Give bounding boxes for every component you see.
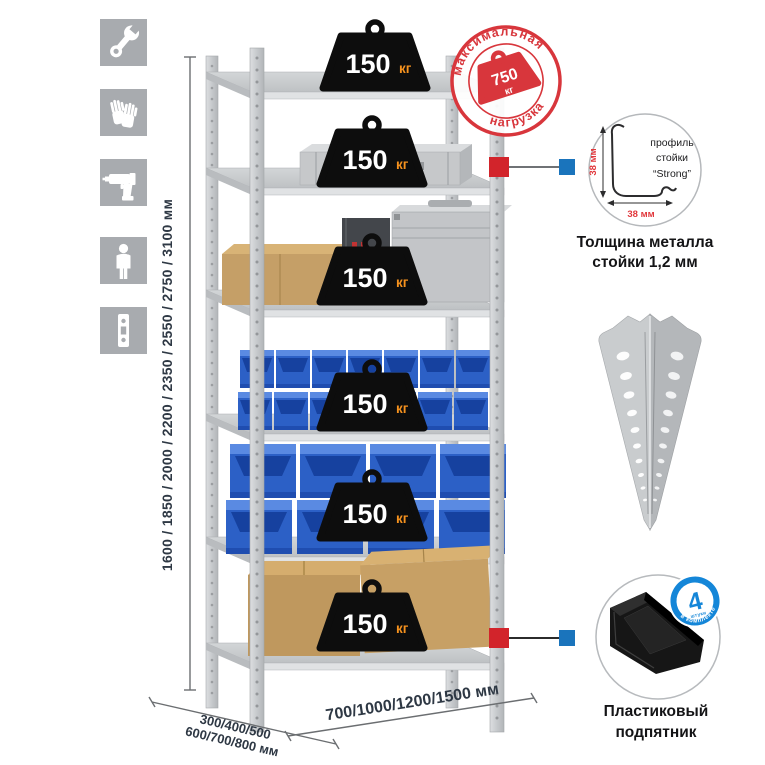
profile-dim-vertical: 38 мм [588, 148, 599, 175]
infographic-scene: 1600 / 1850 / 2000 / 2200 / 2350 / 2550 … [0, 0, 765, 765]
person-icon [100, 237, 147, 284]
svg-text:кг: кг [396, 275, 409, 290]
svg-text:150: 150 [342, 609, 387, 639]
callout-foot [489, 628, 575, 648]
svg-text:кг: кг [396, 621, 409, 636]
svg-text:150: 150 [342, 263, 387, 293]
svg-text:150: 150 [342, 145, 387, 175]
load-unit: кг [399, 61, 412, 76]
svg-text:кг: кг [396, 511, 409, 526]
callout-blue-marker [559, 630, 575, 646]
callout-post-profile [489, 157, 575, 177]
profile-label-3: “Strong” [653, 168, 691, 180]
load-value: 150 [345, 49, 390, 79]
foot-caption-line2: подпятник [615, 724, 696, 741]
thickness-caption-line2: стойки 1,2 мм [592, 254, 697, 271]
profile-label-2: стойки [656, 152, 688, 164]
drill-icon [100, 159, 147, 206]
callout-red-marker [489, 157, 509, 177]
product-infographic: 1600 / 1850 / 2000 / 2200 / 2350 / 2550 … [0, 0, 765, 765]
rack-post-front-left [250, 48, 264, 732]
callout-blue-marker [559, 159, 575, 175]
tools-icon-column [100, 19, 147, 354]
svg-text:150: 150 [342, 389, 387, 419]
gloves-icon [100, 89, 147, 136]
depth-dimension: 300/400/500 600/700/800 мм [149, 697, 339, 759]
height-dimension: 1600 / 1850 / 2000 / 2200 / 2350 / 2550 … [159, 57, 196, 690]
load-badge-2: 150 кг [320, 118, 424, 184]
post-profile-detail: 38 мм 38 мм профиль стойки “Strong” Толщ… [577, 114, 714, 271]
height-dimension-label: 1600 / 1850 / 2000 / 2200 / 2350 / 2550 … [159, 199, 175, 571]
svg-text:150: 150 [342, 499, 387, 529]
foot-caption-line1: Пластиковый [604, 703, 709, 720]
post-profile-icon [100, 307, 147, 354]
callout-red-marker [489, 628, 509, 648]
thickness-caption-line1: Толщина металла [577, 234, 714, 251]
angle-post-image [599, 314, 701, 530]
width-dimension-label: 700/1000/1200/1500 мм [325, 681, 500, 725]
profile-label-1: профиль [650, 137, 694, 149]
svg-text:кг: кг [396, 157, 409, 172]
svg-text:кг: кг [396, 401, 409, 416]
wrench-icon [100, 19, 147, 66]
plastic-foot-detail: 4 штуки в комплекте Пластиковый подпятни… [596, 570, 726, 741]
profile-dim-horizontal: 38 мм [627, 209, 654, 220]
load-badge-1: 150 кг [323, 22, 427, 88]
